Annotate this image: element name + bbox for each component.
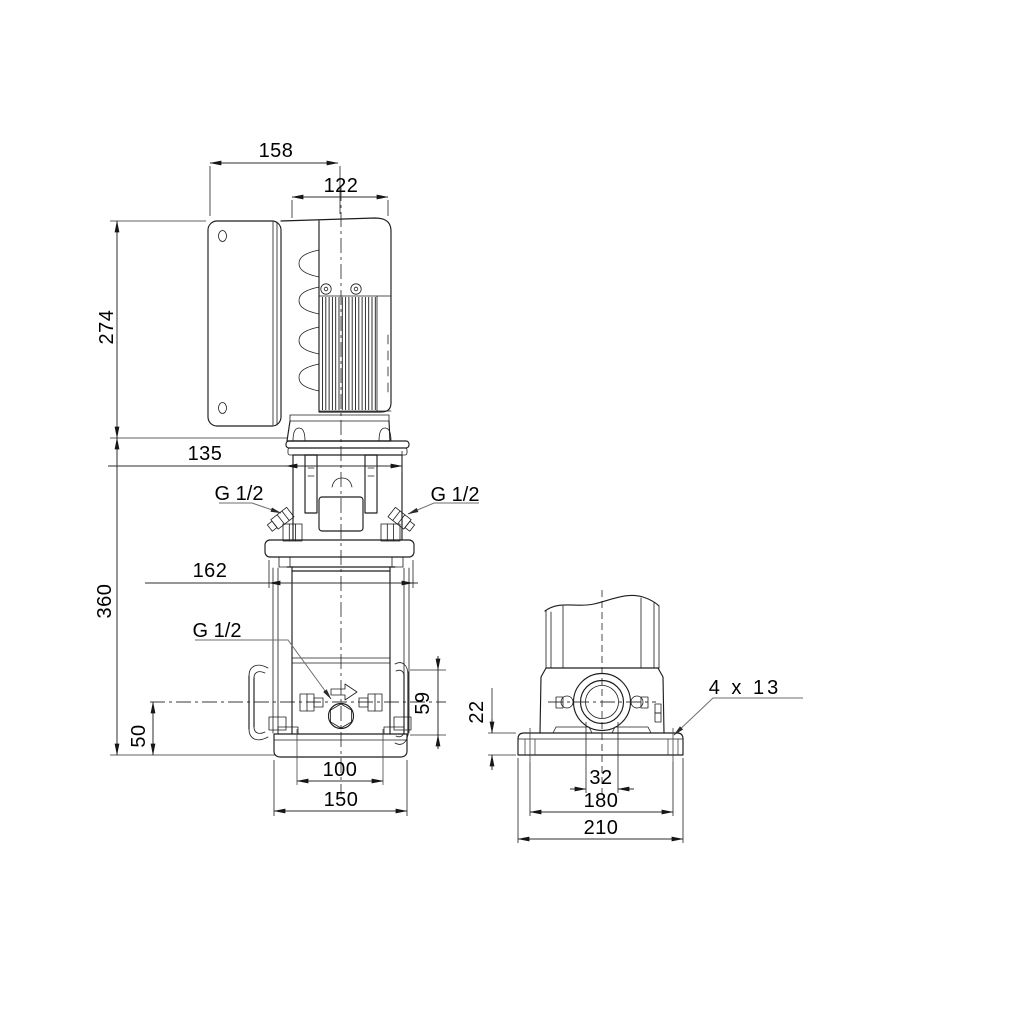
coupling-guard-left <box>305 455 317 513</box>
dim-label-274: 274 <box>96 310 118 345</box>
side-view <box>518 590 683 795</box>
dim-label-360: 360 <box>94 584 116 619</box>
fin-pack-frame <box>319 296 391 411</box>
port-flange-left <box>249 665 268 740</box>
control-box-hole-bottom <box>219 403 227 414</box>
staybolts-left <box>273 568 278 733</box>
pump-head <box>265 455 416 567</box>
motor-screw-left <box>321 284 331 294</box>
dim-overall-width: 158 <box>210 140 340 216</box>
dim-label-100: 100 <box>323 759 358 781</box>
motor-adapter <box>286 415 409 455</box>
motor-screw-right <box>351 284 361 294</box>
dim-label-135: 135 <box>188 443 223 465</box>
gland-bumps <box>299 250 319 391</box>
flow-direction-arrow <box>331 684 357 700</box>
side-sleeve-lines <box>546 598 659 668</box>
dim-label-210: 210 <box>584 817 619 839</box>
flange-nut-right <box>392 557 403 567</box>
head-flange-plate <box>265 540 414 557</box>
pump-dimensional-drawing: 158 122 274 360 135 162 <box>0 0 1024 1024</box>
dim-port-axis-to-base: 50 <box>128 702 153 755</box>
dim-adapter-width: 135 <box>108 443 402 472</box>
staybolt-nut-left <box>269 717 286 730</box>
gauge-plug-right <box>359 694 382 711</box>
dimensions: 158 122 274 360 135 162 <box>94 140 803 843</box>
nameplate-detail <box>655 704 661 722</box>
shaft-dome <box>332 478 352 487</box>
port-left-label: G 1/2 <box>215 483 264 505</box>
front-view <box>150 186 446 795</box>
coupling-guard-right <box>365 455 377 513</box>
dim-label-180: 180 <box>584 790 619 812</box>
gauge-plug-left <box>300 694 323 711</box>
head-bolt-right <box>381 524 400 541</box>
flange-nut-left <box>279 557 290 567</box>
base-plate <box>518 728 683 762</box>
dim-label-150: 150 <box>324 789 359 811</box>
dim-label-122: 122 <box>324 175 359 197</box>
motor-fins <box>323 297 376 410</box>
dim-label-22: 22 <box>466 700 488 723</box>
control-box-hole-top <box>219 231 227 242</box>
dim-label-162: 162 <box>193 560 228 582</box>
drain-port-label: G 1/2 <box>193 620 242 642</box>
label-port-right: G 1/2 <box>408 484 479 514</box>
dim-base-hole-spacing: 100 <box>297 759 383 781</box>
vent-plug-left <box>266 507 294 532</box>
port-flange-right <box>395 663 408 745</box>
control-box-edge-lines <box>273 222 277 425</box>
label-mounting-holes: 4 x 13 <box>674 677 803 735</box>
pump-body <box>249 567 411 785</box>
motor <box>208 218 409 455</box>
control-box <box>208 221 281 426</box>
label-port-left: G 1/2 <box>215 483 281 513</box>
dim-port-flange-height: 59 <box>410 656 446 749</box>
dim-plate-thickness: 22 <box>466 688 516 770</box>
label-drain-port: G 1/2 <box>193 620 331 699</box>
dim-head-width: 162 <box>145 560 418 588</box>
dim-motor-height: 274 <box>96 221 288 438</box>
mounting-holes-label: 4 x 13 <box>709 677 781 699</box>
dim-label-158: 158 <box>259 140 294 162</box>
dim-label-50: 50 <box>128 724 150 747</box>
dim-label-59: 59 <box>412 691 434 714</box>
dim-label-32: 32 <box>589 767 612 789</box>
